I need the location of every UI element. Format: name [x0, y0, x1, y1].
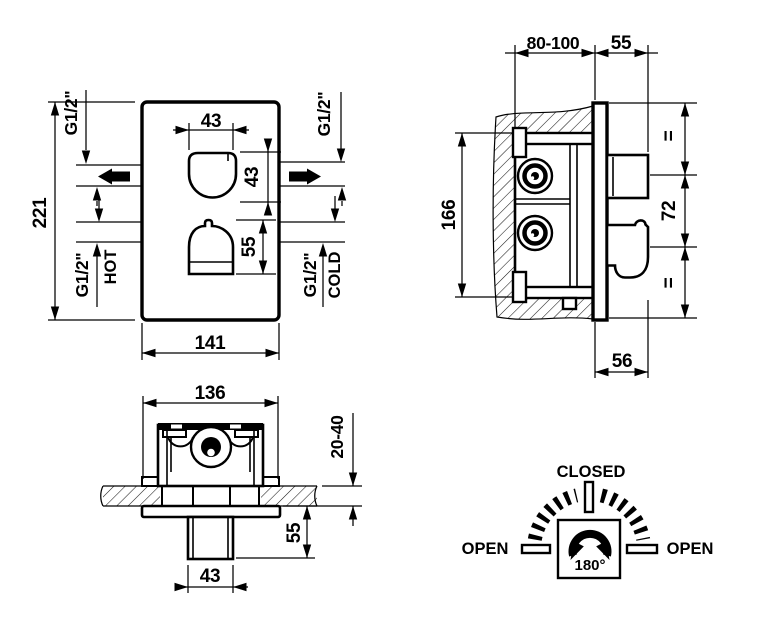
inlet-port-upper	[518, 159, 552, 193]
rotation-diagram: CLOSED OPEN OPEN 180°	[462, 463, 714, 578]
dim-plate-width: 141	[142, 323, 279, 360]
dim-finish-depth: 20-40	[283, 413, 362, 526]
cold-label: COLD	[326, 252, 344, 299]
side-view: 80-100 55 166 = 72 = 56	[439, 33, 697, 378]
dim-label: 43	[201, 111, 222, 132]
dim-label: 80-100	[527, 33, 580, 53]
dim-label: 55	[611, 33, 632, 54]
dim-label: 221	[30, 197, 51, 229]
inlet-hot-label: G1/2" HOT	[72, 196, 120, 307]
knob-stem	[188, 517, 233, 559]
trim-plate-edge	[593, 103, 607, 320]
dim-label: 43	[200, 566, 221, 587]
thread-label: G1/2"	[314, 92, 334, 137]
mounting-wing-right	[263, 477, 279, 486]
trim-plate-top	[142, 506, 280, 517]
rough-in-box	[142, 423, 279, 486]
dim-knob-width-bottom: 43	[175, 565, 249, 593]
technical-drawing: 43 43 55 141 221	[0, 0, 759, 619]
thread-label: G1/2"	[72, 253, 92, 298]
dim-label: 72	[659, 201, 680, 222]
recessed-body	[513, 128, 593, 309]
dim-label: 55	[284, 522, 305, 543]
mounting-wing-left	[142, 477, 158, 486]
thread-label: G1/2"	[61, 91, 81, 136]
open-left-label: OPEN	[462, 540, 509, 558]
dim-label: 141	[195, 333, 227, 354]
dim-label: 56	[612, 351, 633, 372]
closed-tick	[585, 482, 593, 512]
outlet-left-label: G1/2"	[61, 90, 101, 206]
dim-label: 55	[239, 236, 260, 257]
dim-label: 20-40	[327, 415, 347, 459]
equal-mark: =	[659, 277, 680, 288]
outlet-arrow-left-icon	[98, 169, 130, 185]
outlet-right-label: G1/2"	[314, 92, 346, 206]
open-right-label: OPEN	[667, 540, 714, 558]
inlet-cold-label: G1/2" COLD	[300, 196, 344, 307]
rotation-symbol: 180°	[558, 520, 620, 578]
closed-label: CLOSED	[557, 463, 626, 481]
thread-label: G1/2"	[300, 253, 320, 298]
open-right-tick	[627, 545, 657, 553]
dim-label: 136	[195, 383, 226, 404]
dim-label: 166	[439, 200, 460, 231]
wall-band	[101, 485, 317, 507]
trim-plate	[142, 102, 279, 320]
volume-knob-side	[607, 220, 648, 277]
temperature-knob	[189, 153, 236, 197]
installation-view: 136 20-40 55 43	[101, 383, 362, 593]
hot-label: HOT	[102, 250, 120, 285]
equal-mark: =	[659, 130, 680, 141]
angle-label: 180°	[574, 557, 605, 574]
front-view: 43 43 55 141 221	[30, 90, 346, 360]
outlet-arrow-right-icon	[289, 169, 321, 185]
open-left-tick	[522, 545, 550, 553]
dim-handle-spacing: = 72 =	[609, 103, 697, 318]
inlet-port-lower	[518, 216, 552, 250]
dim-label: 43	[242, 167, 263, 188]
technical-drawing-page: 43 43 55 141 221	[0, 0, 759, 619]
